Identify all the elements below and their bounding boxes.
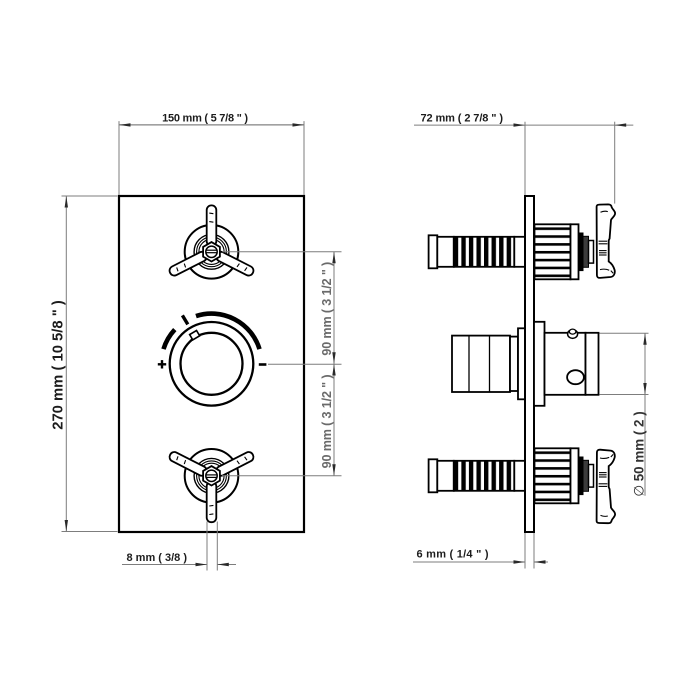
svg-text:6 mm ( 1/4 " ): 6 mm ( 1/4 " ) <box>417 549 489 561</box>
svg-text:72 mm ( 2 7/8 " ): 72 mm ( 2 7/8 " ) <box>421 112 504 124</box>
svg-text:150 mm ( 5 7/8 " ): 150 mm ( 5 7/8 " ) <box>162 112 248 124</box>
svg-text:270 mm ( 10 5/8 " ): 270 mm ( 10 5/8 " ) <box>51 300 67 430</box>
svg-text:∅ 50 mm ( 2 ): ∅ 50 mm ( 2 ) <box>631 411 646 496</box>
svg-text:90 mm ( 3 1/2 " ): 90 mm ( 3 1/2 " ) <box>320 262 334 356</box>
svg-text:8 mm ( 3/8 ): 8 mm ( 3/8 ) <box>127 552 188 564</box>
svg-text:90 mm ( 3 1/2 " ): 90 mm ( 3 1/2 " ) <box>320 375 334 469</box>
